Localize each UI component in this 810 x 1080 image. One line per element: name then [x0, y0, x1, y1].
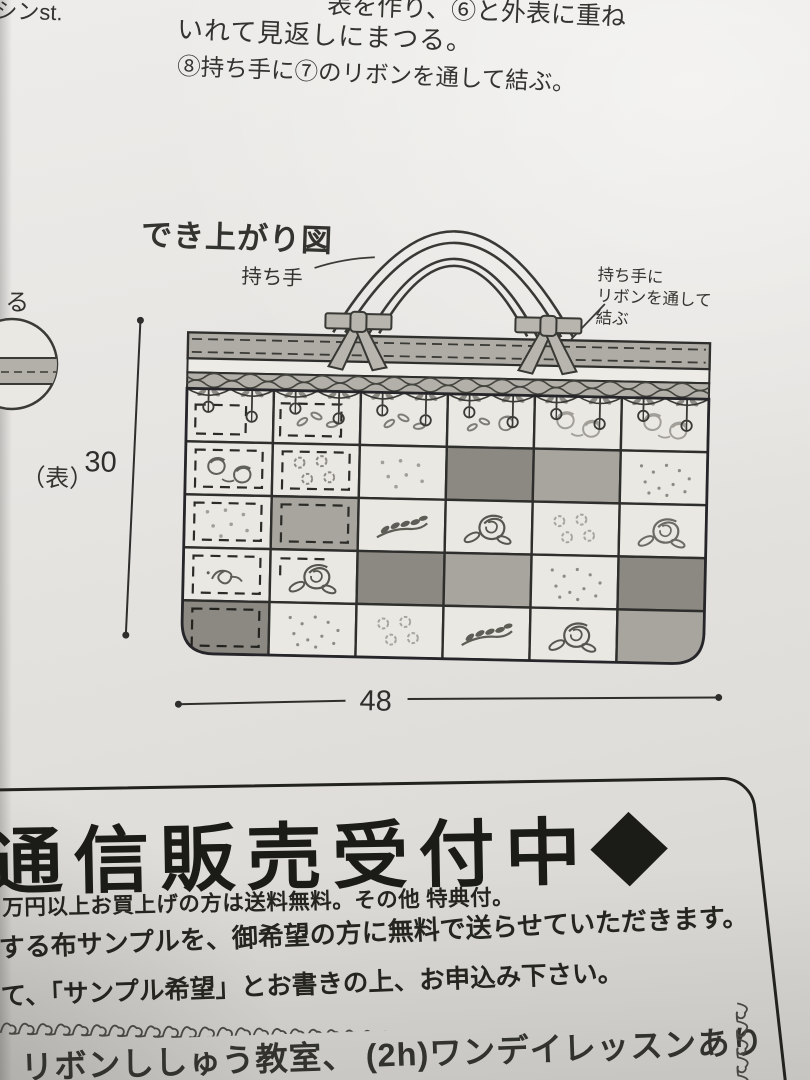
patchwork-grid [181, 388, 708, 664]
patch-cell [529, 608, 617, 663]
dimension-width: 48 [175, 681, 723, 724]
patch-cell [270, 549, 358, 604]
patch-cell [445, 500, 533, 555]
patch-cell [181, 600, 269, 655]
bag-diagram-svg: 30 48 [75, 215, 746, 759]
patch-cell [183, 547, 271, 602]
magazine-photo: シンst. 表を作り、⑥と外表に重ね いれて見返しにまつる。 ⑧持ち手に⑦のリボ… [0, 0, 810, 1080]
patch-cell [355, 604, 443, 659]
patch-cell [268, 602, 356, 657]
patch-cell [442, 606, 530, 661]
patch-cell [616, 609, 704, 664]
dimension-height-value: 30 [84, 446, 117, 479]
patch-cell [446, 447, 534, 502]
patch-cell [619, 503, 707, 558]
instruction-line-3: ⑧持ち手に⑦のリボンを通して結ぶ。 [177, 47, 577, 98]
patch-cell [533, 449, 621, 504]
fabric-circle-illustration [0, 314, 68, 426]
dimension-width-value: 48 [359, 685, 392, 718]
patch-cell [358, 498, 446, 553]
patch-cell [272, 443, 360, 498]
patch-cell [617, 556, 705, 611]
handle-pointer-line [315, 256, 375, 269]
patch-cell [532, 502, 620, 557]
fragment-machine-stitch: シンst. [0, 0, 63, 27]
patch-cell [444, 553, 532, 608]
fragment-ru: る [5, 282, 30, 318]
patch-cell [357, 551, 445, 606]
patch-cell [185, 441, 273, 496]
patch-cell [620, 450, 708, 505]
dimension-height: 30 [81, 316, 144, 639]
patch-cell [359, 445, 447, 500]
patch-cell [271, 496, 359, 551]
patch-cell [184, 494, 272, 549]
patch-cell [531, 555, 619, 610]
